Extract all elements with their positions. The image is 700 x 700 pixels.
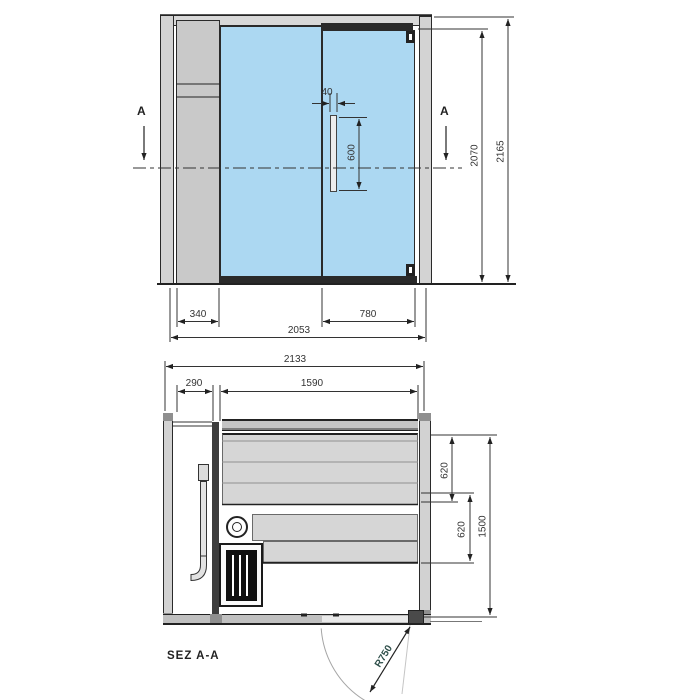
section-marker-a-left: A <box>137 104 146 118</box>
door-top-rail <box>321 23 413 31</box>
heater-slat-icon <box>232 555 234 596</box>
dim-front-width: 2053 <box>283 325 315 336</box>
door-swing-arc <box>321 625 410 700</box>
plan-right-wall <box>419 413 431 625</box>
plan-back-wall <box>222 419 418 431</box>
door-handle <box>330 115 337 192</box>
dim-door-height: 2070 <box>470 140 481 172</box>
technical-drawing-canvas: A A 40 600 2070 2165 340 780 2053 2133 2… <box>0 0 700 700</box>
dim-handle-width: 40 <box>315 87 339 98</box>
pipe-elbow <box>191 556 207 581</box>
plan-wall-block <box>210 614 222 624</box>
section-label: SEZ A-A <box>167 650 220 662</box>
drain-circle-inner-icon <box>232 522 242 532</box>
plan-corner-block <box>163 413 173 421</box>
plan-corner-block <box>419 413 431 421</box>
dim-handle-length: 600 <box>347 138 358 168</box>
plan-partition-wall <box>212 422 219 623</box>
door-hinge-bottom-icon <box>406 264 415 276</box>
heater-grill <box>226 550 257 601</box>
dim-bench-upper-depth: 620 <box>440 456 451 486</box>
elevation-side-panel <box>176 20 220 284</box>
heater-slat-icon <box>246 555 248 596</box>
elevation-left-edge-profile <box>160 15 174 285</box>
dim-interior-depth: 1500 <box>478 511 489 543</box>
bench-lower-back <box>252 514 418 541</box>
dim-overall-width: 2133 <box>279 354 311 365</box>
dim-interior-width: 1590 <box>296 378 328 389</box>
dim-overall-height: 2165 <box>496 136 507 168</box>
elevation-bottom-rail <box>219 276 417 284</box>
bench-lower-front <box>263 541 418 564</box>
fixed-glass-panel <box>220 26 322 278</box>
dim-service-gap: 290 <box>179 378 209 389</box>
door-hinge-top-icon <box>406 31 415 43</box>
dim-side-panel-width: 340 <box>183 309 213 320</box>
dim-door-swing-radius: R750 <box>369 637 400 677</box>
pipe-fitting <box>198 464 209 481</box>
section-marker-a-right: A <box>440 104 449 118</box>
dim-bench-lower-depth: 620 <box>457 515 468 545</box>
heater-slat-icon <box>239 555 241 596</box>
elevation-right-edge-profile <box>419 16 432 285</box>
bench-upper <box>222 433 418 505</box>
dim-door-width: 780 <box>353 309 383 320</box>
plan-left-wall <box>163 413 173 625</box>
plan-door-opening <box>322 616 408 622</box>
pipe <box>200 481 207 558</box>
plan-door-hinge-block <box>408 610 424 624</box>
